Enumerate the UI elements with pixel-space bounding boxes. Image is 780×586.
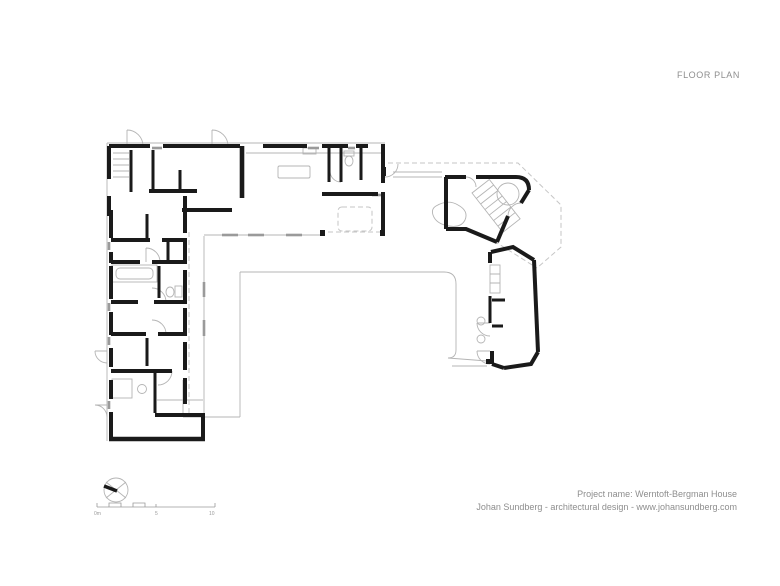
sheet-title: FLOOR PLAN (677, 70, 740, 80)
walls (109, 144, 538, 441)
scale-label-5: 5 (155, 511, 158, 517)
scale-label-10: 10 (209, 511, 215, 517)
north-arrow-icon (104, 478, 128, 502)
scale-label-0: 0m (94, 511, 101, 517)
dashed-roof-lines (189, 163, 561, 413)
floor-plan-sheet: 0m 5 10 FLOOR PLAN Project name: Werntof… (0, 0, 780, 586)
credit-text: Johan Sundberg - architectural design - … (476, 502, 737, 512)
columns-and-leaves (320, 167, 491, 364)
dining-table (338, 207, 372, 231)
project-name-text: Project name: Werntoft-Bergman House (577, 489, 737, 499)
scale-bar: 0m 5 10 (94, 503, 215, 517)
